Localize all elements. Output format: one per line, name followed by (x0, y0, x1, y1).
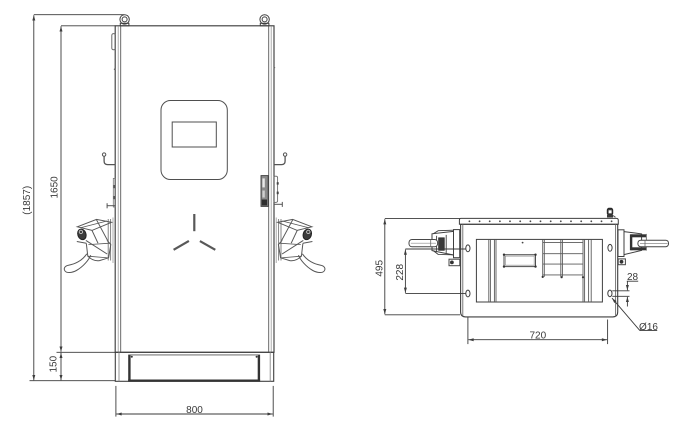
svg-text:800: 800 (186, 405, 203, 416)
svg-text:28: 28 (627, 272, 639, 283)
svg-text:150: 150 (49, 355, 60, 372)
svg-text:495: 495 (375, 260, 386, 277)
svg-text:228: 228 (395, 264, 406, 281)
svg-text:(1857): (1857) (22, 186, 33, 215)
svg-text:1650: 1650 (50, 176, 61, 199)
svg-text:Ø16: Ø16 (639, 322, 658, 333)
svg-text:720: 720 (529, 330, 546, 341)
